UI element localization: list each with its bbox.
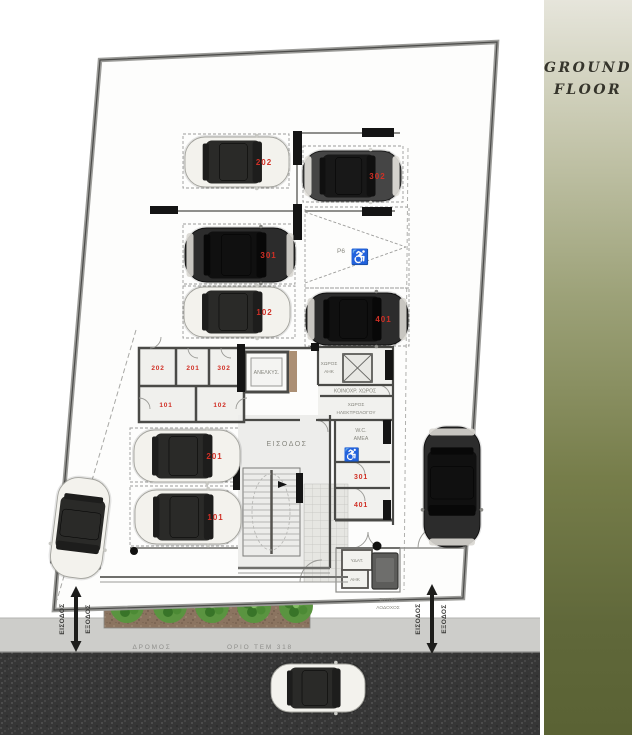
wc-label-1: W.C. <box>355 428 366 434</box>
parcel-boundary-label: ΟΡΙΟ ΤΕΜ 318 <box>227 644 293 651</box>
entrance-text-right: ΕΙΣΟΔΟΣ <box>415 603 422 634</box>
vent-shaft <box>343 354 372 382</box>
wc-label-2: ΑΜΕΑ <box>354 436 369 442</box>
car: 102 <box>182 284 292 341</box>
car: 101 <box>133 487 243 548</box>
car-unit-label: 102 <box>256 308 272 317</box>
car-unit-label: 101 <box>207 513 223 522</box>
storage-unit-label: 201 <box>186 365 199 372</box>
page-title: GROUND FLOOR <box>544 58 632 101</box>
garbage-room-label-1: ΣΚΥΒΑ- <box>379 597 397 603</box>
storage-unit-label: 101 <box>159 402 172 409</box>
exit-text-right: ΕΞΟΔΟΣ <box>441 604 448 633</box>
electrician-room-label-1: ΧΩΡΟΣ <box>348 402 365 408</box>
storage-unit-301: 301 <box>354 474 368 481</box>
car: 302 <box>301 148 403 205</box>
storage-unit-401: 401 <box>354 502 368 509</box>
storage-unit-label: 302 <box>217 365 230 372</box>
car-unit-label: 201 <box>206 452 222 461</box>
car-unit-label: 202 <box>256 158 272 167</box>
entrance-text-left: ΕΙΣΟΔΟΣ <box>59 603 66 634</box>
car-unit-label: 401 <box>375 315 391 324</box>
storage-unit-label: 202 <box>151 365 164 372</box>
car: 401 <box>304 290 410 349</box>
car: 202 <box>183 134 291 191</box>
car-unit-label: 302 <box>369 172 385 181</box>
column-dot <box>130 547 138 555</box>
wood-partition <box>289 351 297 392</box>
elevator-label: ΑΝΕΛΚΥΣ. <box>254 370 280 376</box>
car: 201 <box>132 427 242 486</box>
entrance-label: ΕΙΣΟΔΟΣ <box>266 441 307 448</box>
wheelchair-icon: ♿ <box>351 248 370 266</box>
wheelchair-icon-wc: ♿ <box>344 447 360 462</box>
exit-text-left: ΕΞΟΔΟΣ <box>85 604 92 633</box>
communal-space-label: ΚΟΙΝΟΧΡ. ΧΩΡΟΣ <box>334 389 376 395</box>
ahk-room-label-1: ΧΩΡΟΣ <box>321 361 338 367</box>
storage-unit-label: 102 <box>213 402 226 409</box>
accessible-space-label: P6 <box>337 248 345 255</box>
column-dot <box>373 542 382 551</box>
car <box>269 661 367 716</box>
floor-plan-page: ΔΡΟΜΟΣ ΟΡΙΟ ΤΕΜ 318 P6 ♿ <box>0 0 632 735</box>
garbage-room-label-2: ΛΟΔΟΧΟΣ <box>376 605 399 611</box>
electrician-room-label-2: ΗΛΕΚΤΡΟΛΟΓΟΥ <box>336 410 376 416</box>
title-line-1: GROUND <box>544 58 632 80</box>
ahk-room-label-2: ΑΗΚ <box>324 369 335 375</box>
floor-plan-drawing: ΔΡΟΜΟΣ ΟΡΙΟ ΤΕΜ 318 P6 ♿ <box>0 0 632 735</box>
title-line-2: FLOOR <box>544 80 632 102</box>
car-unit-label: 301 <box>260 251 276 260</box>
side-banner: GROUND FLOOR <box>544 0 632 735</box>
water-meter-label: ΥΔΑΤ. <box>351 558 364 564</box>
staircase <box>243 468 300 556</box>
ahk-small-label: ΑΗΚ <box>350 577 361 583</box>
road-label: ΔΡΟΜΟΣ <box>132 644 171 651</box>
car: 301 <box>183 225 297 286</box>
car <box>421 425 484 549</box>
